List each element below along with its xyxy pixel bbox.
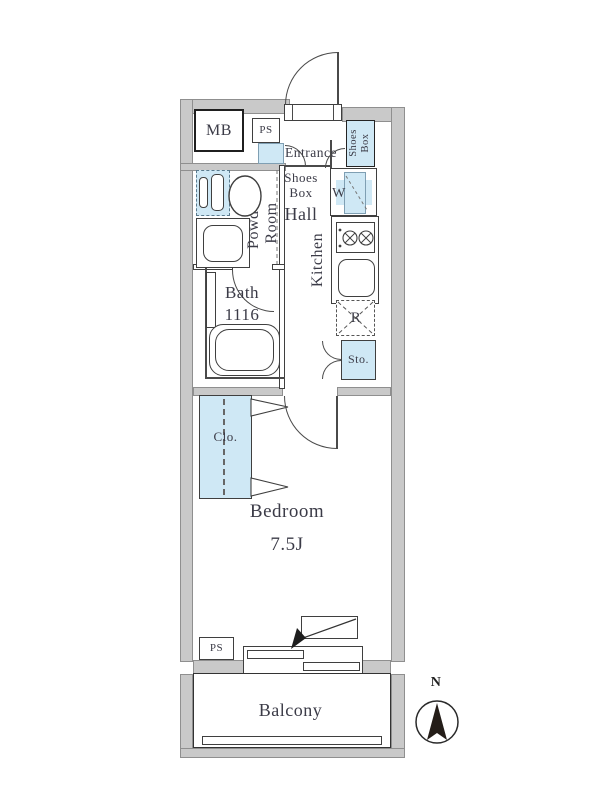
sliding-window-sash bbox=[247, 650, 304, 659]
wall-segment bbox=[391, 674, 405, 758]
balcony-label: Balcony bbox=[233, 698, 348, 722]
bedroom-text: Bedroom bbox=[250, 501, 324, 522]
shoes-box-cabinet-label: Shoes Box bbox=[349, 120, 371, 166]
storage-text: Sto. bbox=[348, 353, 369, 366]
bath-label: Bath bbox=[212, 283, 272, 303]
wall-segment bbox=[180, 99, 193, 662]
bedroom-door-arc bbox=[284, 396, 337, 449]
closet-label: Clo. bbox=[199, 427, 252, 447]
compass-north-text: N bbox=[431, 675, 442, 691]
toilet-tank bbox=[211, 174, 224, 211]
refrigerator-text: R bbox=[351, 310, 362, 327]
wall-segment bbox=[391, 107, 405, 662]
wall-segment bbox=[205, 377, 285, 379]
balcony-railing bbox=[202, 736, 382, 745]
sliding-window-sash bbox=[303, 662, 360, 671]
balcony-text: Balcony bbox=[259, 700, 323, 720]
powder-sink bbox=[203, 225, 243, 262]
pipe-space-bottom-label: PS bbox=[199, 637, 234, 660]
washer-label: W bbox=[330, 186, 348, 202]
entrance-door-frame-tick bbox=[333, 105, 334, 120]
bath-text: Bath bbox=[225, 283, 259, 302]
compass-icon bbox=[405, 690, 470, 760]
shoes-box-hall-text: Box bbox=[289, 186, 312, 201]
toilet-tank bbox=[199, 177, 208, 208]
powder-room-text: Powder bbox=[245, 197, 263, 249]
wall-segment bbox=[360, 660, 391, 674]
closet-hanger-pipe bbox=[223, 399, 225, 495]
refrigerator-label: R bbox=[344, 308, 368, 328]
bathtub-inner bbox=[215, 329, 274, 371]
wall-segment bbox=[193, 660, 245, 674]
bedroom-size-label: 7.5J bbox=[227, 533, 347, 557]
entrance-door-leaf bbox=[337, 52, 339, 105]
kitchen-label: Kitchen bbox=[308, 215, 328, 305]
storage-door-arc bbox=[322, 341, 341, 360]
entrance-door-arc bbox=[285, 52, 338, 105]
washer-text: W bbox=[332, 186, 346, 202]
bedroom-size-text: 7.5J bbox=[270, 534, 303, 555]
window-arrow-flag bbox=[301, 616, 358, 639]
bath-size-label: 1116 bbox=[212, 305, 272, 325]
wall-segment bbox=[180, 674, 193, 758]
kitchen-sink bbox=[338, 259, 375, 297]
meter-box-text: MB bbox=[206, 122, 232, 140]
closet-text: Clo. bbox=[213, 430, 237, 445]
shoes-box-cabinet-text: Box bbox=[360, 134, 372, 153]
meter-box-label: MB bbox=[194, 109, 244, 152]
wall-segment bbox=[180, 748, 405, 758]
powder-room-label: Powder Room bbox=[243, 168, 283, 278]
floor-plan: MB PS Entrance Shoes Box Shoes Box Hall … bbox=[0, 0, 600, 800]
shoes-box-cabinet-text: Shoes bbox=[348, 129, 360, 157]
stove bbox=[336, 222, 375, 253]
pipe-space-bottom-text: PS bbox=[210, 642, 223, 654]
bedroom-door-leaf bbox=[336, 396, 338, 449]
closet bbox=[199, 395, 252, 499]
kitchen-text: Kitchen bbox=[309, 233, 327, 287]
storage-label: Sto. bbox=[341, 350, 376, 370]
pipe-space-top-text: PS bbox=[259, 124, 272, 136]
storage-door-arc bbox=[322, 360, 341, 379]
pipe-space-top-label: PS bbox=[252, 118, 280, 143]
bath-size-text: 1116 bbox=[225, 305, 260, 324]
wall-segment bbox=[337, 387, 391, 396]
compass-north-label: N bbox=[424, 675, 448, 691]
powder-room-text: Room bbox=[263, 202, 281, 243]
entrance-door-frame-tick bbox=[292, 105, 293, 120]
bedroom-label: Bedroom bbox=[227, 500, 347, 524]
shoes-box-hall-text: Shoes bbox=[284, 171, 318, 186]
